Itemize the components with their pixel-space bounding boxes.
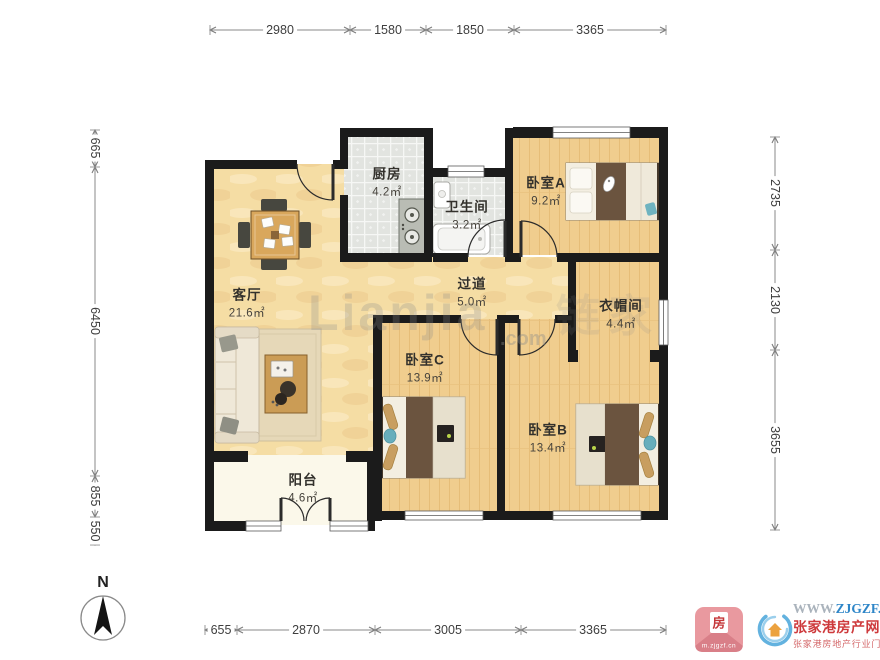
- north-compass: [81, 596, 125, 640]
- room-name: 过道: [457, 273, 487, 293]
- site-url-main: ZJGZF.CN: [836, 601, 880, 616]
- room-label-bedroom-b: 卧室B 13.4㎡: [528, 419, 568, 456]
- dim-top-1: 2980: [263, 23, 297, 37]
- app-badge-char: 房: [712, 613, 725, 632]
- dim-left-2: 6450: [88, 304, 102, 338]
- floorplan-page: 厨房 4.2㎡ 卫生间 3.2㎡ 卧室A 9.2㎡ 客厅 21.6㎡ 过道 5.…: [0, 0, 880, 660]
- dim-bottom-2: 2870: [289, 623, 323, 637]
- room-name: 厨房: [372, 163, 402, 183]
- room-name: 阳台: [288, 469, 318, 489]
- room-name: 卧室C: [405, 349, 445, 369]
- site-url-prefix: WWW.: [793, 601, 836, 616]
- dim-bottom-4: 3365: [576, 623, 610, 637]
- room-area: 9.2㎡: [526, 193, 566, 209]
- bed-a: [566, 163, 665, 220]
- dim-bottom-1: 655: [208, 623, 235, 637]
- site-name: 张家港房产网: [793, 617, 880, 637]
- kitchen-hob: [399, 199, 426, 255]
- app-badge-url: m.zjgzf.cn: [702, 643, 736, 650]
- room-name: 卧室A: [526, 172, 566, 192]
- dim-left-1: 665: [88, 135, 102, 162]
- dim-top-2: 1580: [371, 23, 405, 37]
- room-label-kitchen: 厨房 4.2㎡: [372, 163, 402, 200]
- dim-bottom-3: 3005: [431, 623, 465, 637]
- site-logo-icon: [753, 607, 796, 650]
- room-area: 4.4㎡: [599, 316, 643, 332]
- dim-right-1: 2735: [768, 176, 782, 210]
- room-name: 卫生间: [445, 196, 489, 216]
- bed-b: [576, 404, 666, 485]
- dim-left-3: 855: [88, 483, 102, 510]
- room-name: 卧室B: [528, 419, 568, 439]
- room-label-bathroom: 卫生间 3.2㎡: [445, 196, 489, 233]
- room-name: 客厅: [229, 284, 265, 304]
- room-label-living-room: 客厅 21.6㎡: [229, 284, 265, 321]
- room-area: 4.6㎡: [288, 490, 318, 506]
- dim-right-3: 3655: [768, 423, 782, 457]
- floorplan-graphic: [0, 0, 880, 660]
- room-area: 13.9㎡: [405, 370, 445, 386]
- room-label-bedroom-a: 卧室A 9.2㎡: [526, 172, 566, 209]
- room-area: 21.6㎡: [229, 305, 265, 321]
- room-name: 衣帽间: [599, 295, 643, 315]
- bed-c: [376, 397, 465, 478]
- room-label-balcony: 阳台 4.6㎡: [288, 469, 318, 506]
- room-area: 5.0㎡: [457, 294, 487, 310]
- dim-right-2: 2130: [768, 283, 782, 317]
- dim-left-4: 550: [88, 518, 102, 545]
- dim-top-3: 1850: [453, 23, 487, 37]
- compass-north-label: N: [97, 574, 109, 592]
- site-tagline: 张家港房地产行业门户: [793, 637, 880, 650]
- room-label-hallway: 过道 5.0㎡: [457, 273, 487, 310]
- room-area: 13.4㎡: [528, 440, 568, 456]
- site-url: WWW.ZJGZF.CN: [793, 601, 880, 617]
- dim-top-4: 3365: [573, 23, 607, 37]
- room-label-bedroom-c: 卧室C 13.9㎡: [405, 349, 445, 386]
- room-area: 3.2㎡: [445, 217, 489, 233]
- room-area: 4.2㎡: [372, 184, 402, 200]
- room-label-cloakroom: 衣帽间 4.4㎡: [599, 295, 643, 332]
- sofa-set: [215, 327, 321, 443]
